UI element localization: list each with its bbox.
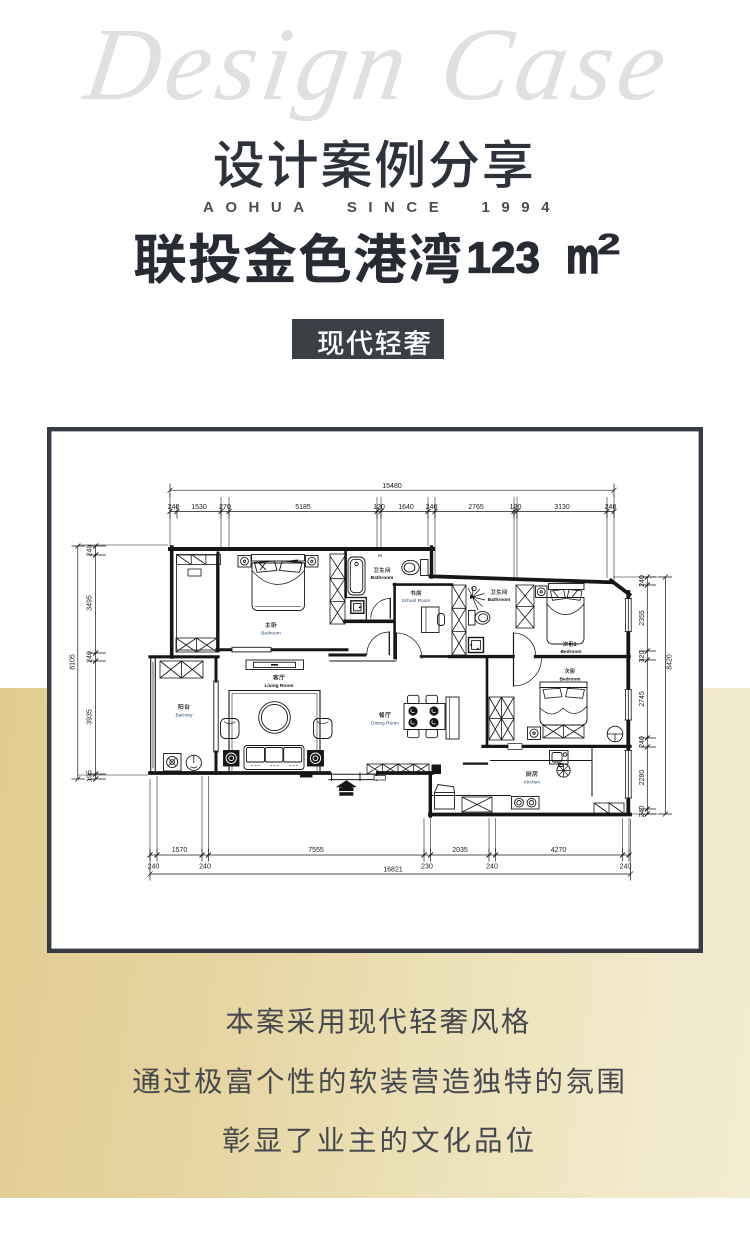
svg-text:M: M xyxy=(378,553,382,558)
svg-text:School Room: School Room xyxy=(402,598,431,604)
svg-text:15480: 15480 xyxy=(382,483,402,490)
svg-text:240: 240 xyxy=(168,504,180,511)
svg-text:1: 1 xyxy=(573,642,576,648)
svg-text:240: 240 xyxy=(426,504,438,511)
svg-text:Bathroom: Bathroom xyxy=(371,575,394,581)
svg-text:3935: 3935 xyxy=(87,709,94,725)
svg-text:2765: 2765 xyxy=(468,504,484,511)
svg-text:3130: 3130 xyxy=(554,504,570,511)
svg-text:123: 123 xyxy=(467,234,540,283)
svg-text:Bedroom: Bedroom xyxy=(261,631,280,637)
svg-text:240: 240 xyxy=(87,545,94,557)
svg-text:4270: 4270 xyxy=(551,847,567,854)
svg-text:1640: 1640 xyxy=(398,504,414,511)
svg-text:240: 240 xyxy=(605,504,617,511)
svg-text:240: 240 xyxy=(639,806,646,818)
svg-text:2035: 2035 xyxy=(452,847,468,854)
svg-text:5185: 5185 xyxy=(295,504,311,511)
svg-text:7555: 7555 xyxy=(308,847,324,854)
svg-text:2280: 2280 xyxy=(639,770,646,786)
svg-text:240: 240 xyxy=(639,736,646,748)
svg-text:120: 120 xyxy=(510,504,522,511)
svg-text:240: 240 xyxy=(620,864,632,871)
svg-text:Bedroom: Bedroom xyxy=(560,649,581,655)
svg-text:320: 320 xyxy=(639,651,646,663)
svg-text:Balcony: Balcony xyxy=(175,713,193,719)
svg-text:240: 240 xyxy=(486,864,498,871)
svg-text:240: 240 xyxy=(148,864,160,871)
svg-text:Kitchen: Kitchen xyxy=(524,780,540,786)
svg-text:240: 240 xyxy=(87,651,94,663)
svg-text:8105: 8105 xyxy=(70,654,77,670)
svg-text:8420: 8420 xyxy=(667,654,674,670)
svg-text:2745: 2745 xyxy=(639,691,646,707)
svg-text:16821: 16821 xyxy=(383,867,403,874)
svg-text:2355: 2355 xyxy=(639,610,646,626)
svg-text:240: 240 xyxy=(199,864,211,871)
svg-text:Bedroom: Bedroom xyxy=(559,677,580,683)
svg-text:3495: 3495 xyxy=(87,595,94,611)
svg-text:230: 230 xyxy=(421,864,433,871)
svg-text:1570: 1570 xyxy=(172,847,188,854)
svg-text:120: 120 xyxy=(373,504,385,511)
svg-text:2: 2 xyxy=(598,228,621,261)
svg-text:Dining Room: Dining Room xyxy=(371,721,399,727)
svg-text:m: m xyxy=(566,229,599,284)
svg-text:Living Room: Living Room xyxy=(264,683,293,689)
svg-text:Bathroom: Bathroom xyxy=(488,597,511,603)
svg-text:195: 195 xyxy=(87,770,94,782)
svg-text:1530: 1530 xyxy=(191,504,207,511)
